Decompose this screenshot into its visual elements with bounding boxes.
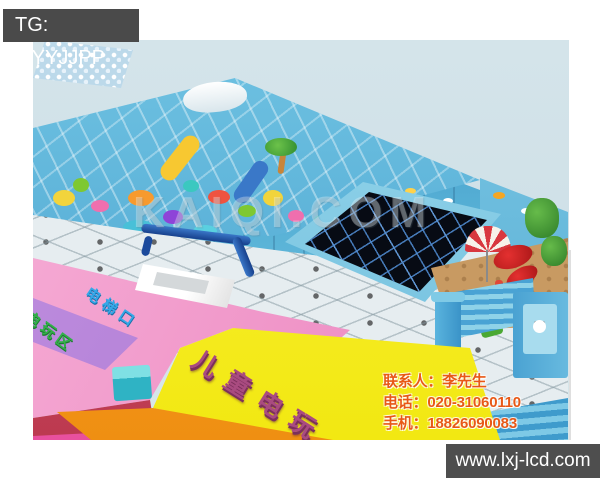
palm-tree-leaves xyxy=(265,138,297,156)
play-equipment-blob xyxy=(91,200,109,212)
entrance-gate-cap xyxy=(431,292,465,302)
umbrella-pole xyxy=(486,250,488,282)
blue-cube-toy xyxy=(112,365,152,402)
play-equipment-blob xyxy=(53,190,75,206)
contact-mobile: 手机：18826090083 xyxy=(383,413,521,434)
brand-watermark: KAIQI.COM xyxy=(133,188,433,238)
contact-person: 联系人：李先生 xyxy=(383,371,521,392)
tg-watermark-bar: TG: MYYJJPP xyxy=(3,9,139,42)
mural-fish xyxy=(493,192,505,199)
playground-photo: 儿童电玩 电梯口 电玩区 KAIQI.COM 联系人：李先生 电话：020-31… xyxy=(33,40,569,440)
screenshot-canvas: 儿童电玩 电梯口 电玩区 KAIQI.COM 联系人：李先生 电话：020-31… xyxy=(0,0,600,480)
contact-info: 联系人：李先生 电话：020-31060110 手机：18826090083 xyxy=(383,371,521,434)
photo-edge-shadow xyxy=(569,250,571,440)
website-watermark-bar: www.lxj-lcd.com xyxy=(446,444,600,478)
tree xyxy=(525,198,559,238)
play-equipment-blob xyxy=(73,178,89,192)
panda-decal xyxy=(533,320,546,333)
contact-phone: 电话：020-31060110 xyxy=(383,392,521,413)
tree xyxy=(541,236,567,266)
